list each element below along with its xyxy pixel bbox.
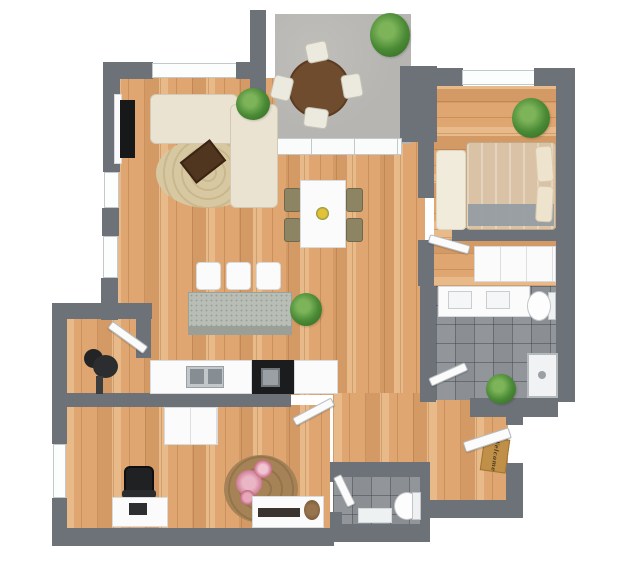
wc-mat xyxy=(358,508,392,523)
hall-floor xyxy=(333,393,428,465)
floor-lamp-base xyxy=(96,376,103,394)
wall-wc-right xyxy=(420,462,430,524)
window-left-2 xyxy=(103,236,118,278)
wall-bedroom-top-left xyxy=(437,68,463,86)
bedroom-rug xyxy=(436,150,466,230)
dining-centerpiece xyxy=(316,207,329,220)
window-bedroom xyxy=(462,70,535,85)
sideboard-twigs xyxy=(304,500,320,520)
dining-chair-1 xyxy=(284,188,301,212)
wall-office-bottom xyxy=(52,528,334,546)
balcony-chair-bottom xyxy=(303,106,330,129)
wall-bedroom-top-right xyxy=(534,68,558,86)
wall-nook-top xyxy=(52,303,152,319)
kitchen-oven xyxy=(261,368,280,387)
rug-flowers-2 xyxy=(254,460,272,478)
tv xyxy=(120,100,135,158)
island-front xyxy=(188,326,292,335)
wc-toilet-tank xyxy=(412,492,421,520)
wall-entry-bottom xyxy=(424,500,523,518)
wall-hall-bedroom xyxy=(418,142,434,198)
wall-left-lower-a xyxy=(52,318,67,444)
wall-hall-bathroom xyxy=(418,240,434,286)
office-wardrobe xyxy=(164,407,218,445)
wall-wc-top xyxy=(330,462,422,477)
wall-kitchen xyxy=(65,393,291,407)
bar-stool-1 xyxy=(196,262,221,290)
bath-toilet-bowl xyxy=(527,291,551,321)
bed-pillow-2 xyxy=(535,186,554,223)
wall-wc-left-b xyxy=(330,512,342,528)
sofa-main xyxy=(150,94,238,144)
balcony-plant xyxy=(370,13,410,57)
sliding-door-balcony xyxy=(268,138,402,155)
dining-chair-4 xyxy=(346,218,363,242)
vanity-sink-left xyxy=(448,291,472,309)
wall-right xyxy=(556,68,575,402)
bar-stool-2 xyxy=(226,262,251,290)
bedroom-wardrobe xyxy=(474,246,556,282)
dining-chair-2 xyxy=(284,218,301,242)
balcony-chair-right xyxy=(340,72,364,99)
vanity-sink-right xyxy=(486,291,510,309)
window-living-top xyxy=(152,63,237,78)
bathroom-plant xyxy=(486,374,516,404)
kitchen-counter-right xyxy=(294,360,338,394)
wall-wc-bottom xyxy=(330,524,430,542)
floor-lamp-body xyxy=(93,355,118,378)
shower-drain xyxy=(538,371,546,379)
laptop xyxy=(129,503,147,515)
dining-chair-3 xyxy=(346,188,363,212)
floor-plan-canvas: Welcome xyxy=(0,0,623,562)
wall-left-upper-b xyxy=(102,208,119,236)
bed-pillow-1 xyxy=(535,145,554,182)
window-office xyxy=(53,444,66,498)
sink-basin-left xyxy=(190,369,204,384)
bedroom-plant xyxy=(512,98,550,138)
island-plant xyxy=(290,293,322,326)
sideboard-decor xyxy=(258,508,300,517)
bar-stool-3 xyxy=(256,262,281,290)
kitchen-island xyxy=(188,292,292,328)
sink-basin-right xyxy=(208,369,222,384)
wall-entry-right-stub xyxy=(506,415,523,425)
sofa-plant xyxy=(236,88,270,120)
wall-balcony-right xyxy=(400,66,437,142)
window-left-1 xyxy=(104,172,119,208)
